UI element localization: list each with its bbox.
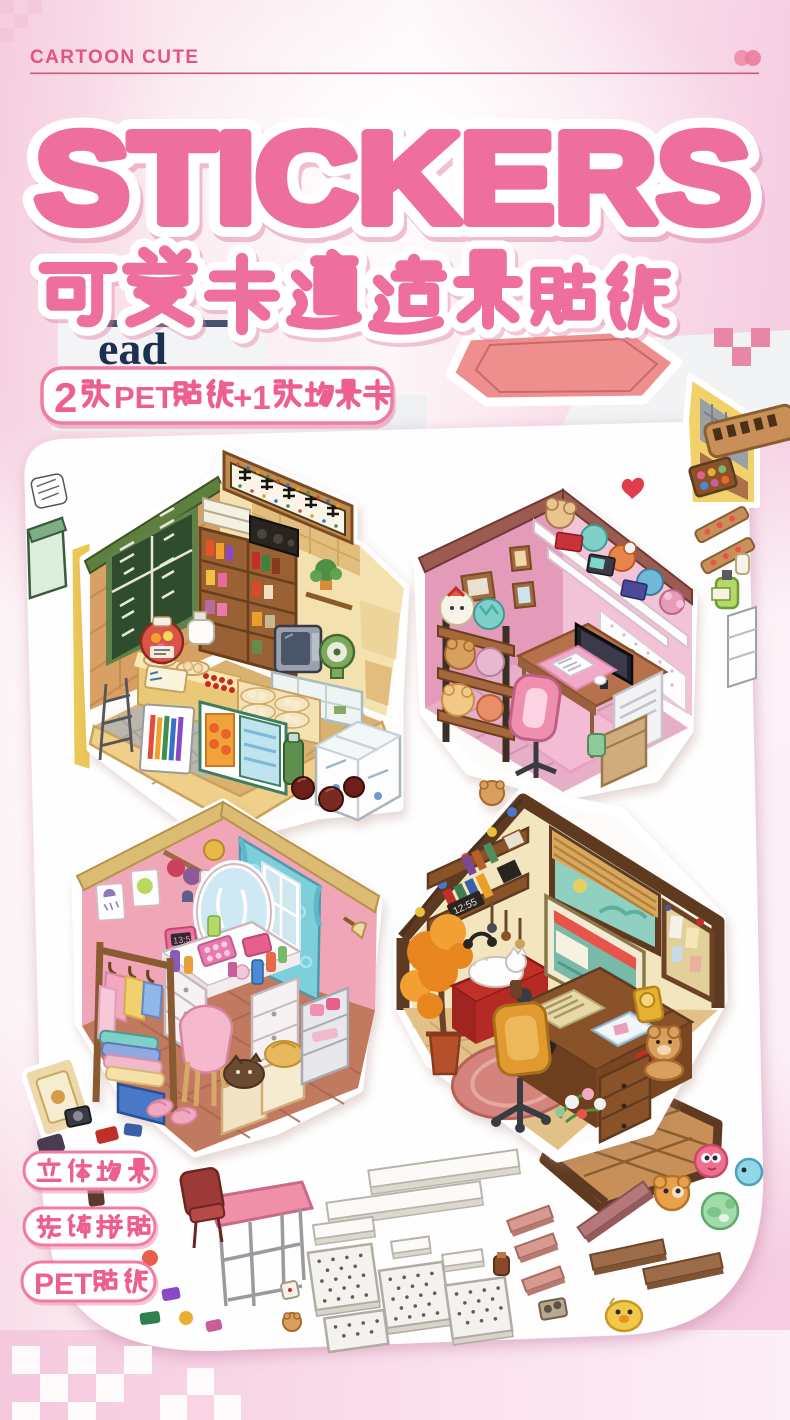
svg-text:+1: +1 — [233, 379, 271, 416]
svg-text:PET: PET — [34, 1268, 92, 1301]
svg-text:STICKERS: STICKERS — [35, 107, 751, 250]
svg-text:2: 2 — [54, 374, 77, 421]
svg-text:PET: PET — [114, 380, 174, 415]
svg-text:CARTOON CUTE: CARTOON CUTE — [30, 47, 200, 68]
